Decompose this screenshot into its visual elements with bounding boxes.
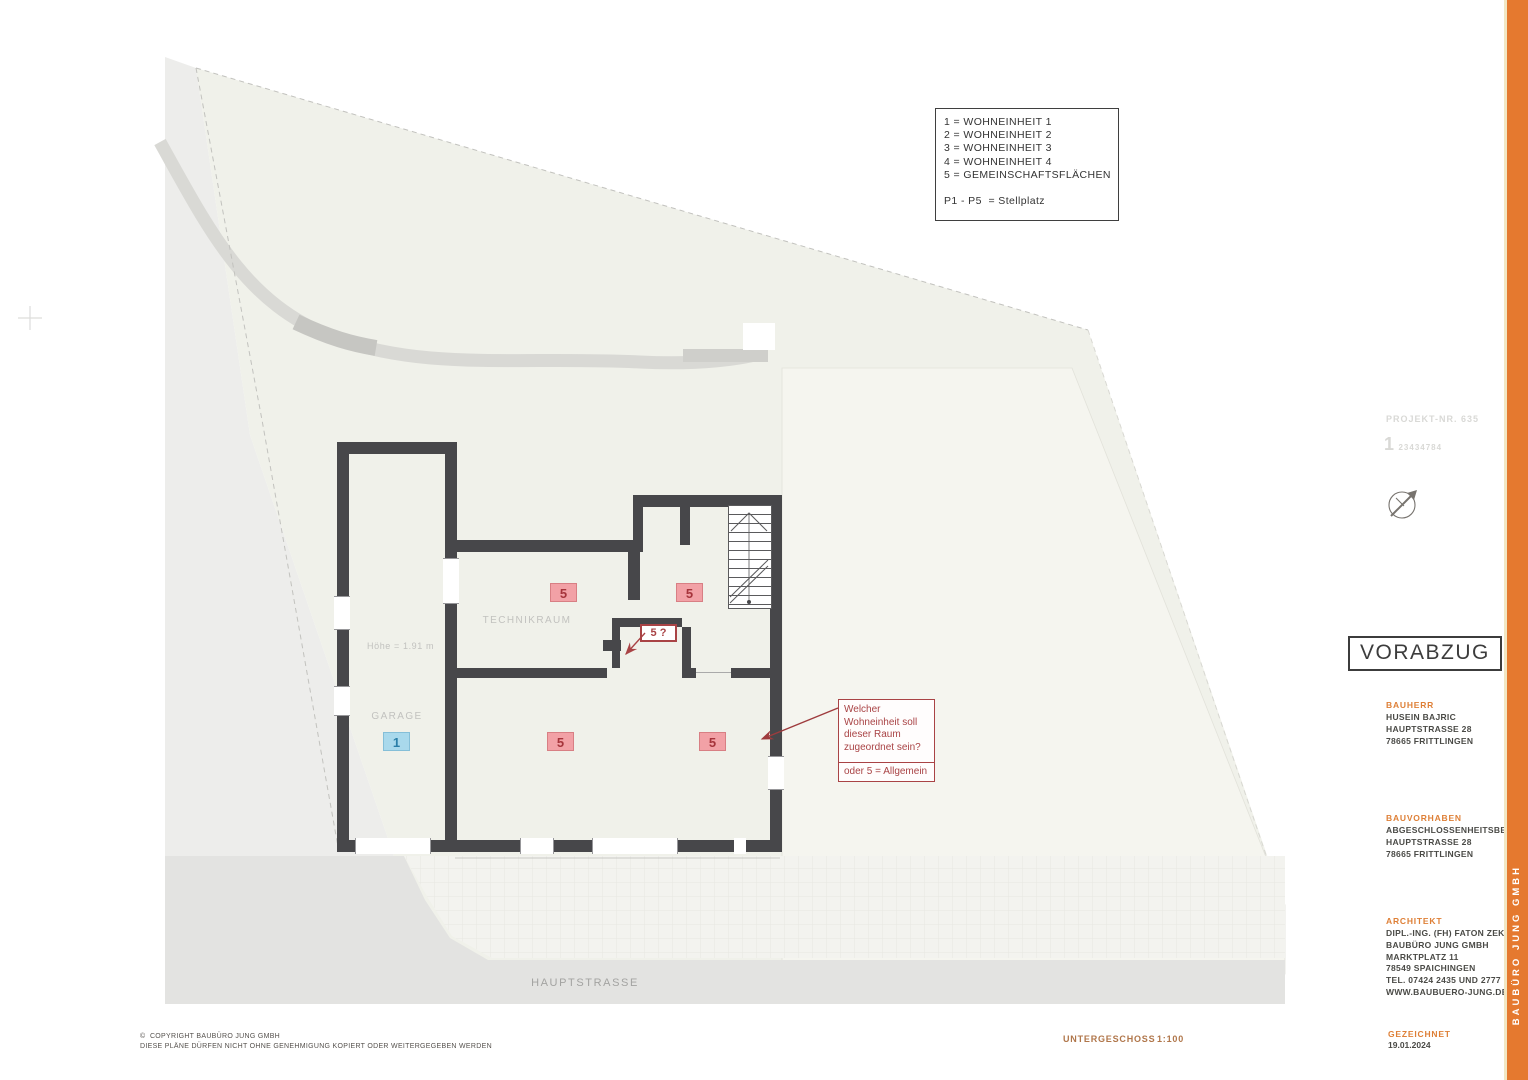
boundary-line (196, 68, 420, 972)
copyright-note: © COPYRIGHT BAUBÜRO JUNG GMBH DIESE PLÄN… (140, 1032, 492, 1051)
architekt-label: ARCHITEKT (1386, 916, 1442, 926)
north-arrow-icon (1389, 490, 1417, 518)
window-opening (334, 596, 350, 630)
bauherr-lines: HUSEIN BAJRIC HAUPTSTRASSE 28 78665 FRIT… (1386, 712, 1473, 747)
architekt-street: MARKTPLATZ 11 (1386, 952, 1511, 964)
boundary-line (1088, 330, 1283, 905)
wall-technik-top (451, 540, 641, 552)
wall-garage-right (445, 442, 457, 852)
wall-divider-1 (451, 668, 607, 678)
unit-label: 5 (550, 583, 577, 602)
legend-line: 5 = GEMEINSCHAFTSFLÄCHEN (944, 169, 1110, 182)
bauherr-street: HAUPTSTRASSE 28 (1386, 724, 1473, 736)
garage-door-opening (355, 838, 431, 854)
bauherr-label: BAUHERR (1386, 700, 1434, 710)
annotation-note: Welcher Wohneinheit soll dieser Raum zug… (838, 699, 935, 782)
legend-line: 2 = WOHNEINHEIT 2 (944, 129, 1110, 142)
paving-grid (404, 856, 1285, 958)
wall-smallroom-stub (603, 640, 621, 651)
door-opening (443, 558, 459, 604)
unit-label-garage: 1 (383, 732, 410, 751)
brand-bar: BAUBÜRO JUNG GMBH (1504, 0, 1528, 1080)
brand-bar-text: BAUBÜRO JUNG GMBH (1511, 865, 1522, 1025)
terrain-white-patch (743, 323, 775, 350)
question-tag: 5 ? (640, 624, 677, 642)
wall-garage-top (337, 442, 457, 454)
project-code: 1 23434784 (1384, 434, 1442, 455)
annotation-alternative: oder 5 = Allgemein (839, 762, 934, 781)
window-opening (334, 686, 350, 716)
project-number: PROJEKT-NR. 635 (1386, 414, 1479, 424)
terrain-band (160, 142, 762, 363)
unit-label: 5 (699, 732, 726, 751)
wall-divider-2 (682, 668, 696, 678)
unit-label: 5 (676, 583, 703, 602)
staircase (728, 505, 772, 609)
wall-garage-left (337, 442, 349, 852)
window-opening (520, 838, 554, 854)
legend-line: 4 = WOHNEINHEIT 4 (944, 156, 1110, 169)
door-opening-line (696, 672, 731, 673)
architekt-firm: BAUBÜRO JUNG GMBH (1386, 940, 1511, 952)
annotation-question: Welcher Wohneinheit soll dieser Raum zug… (839, 700, 934, 762)
bauherr-name: HUSEIN BAJRIC (1386, 712, 1473, 724)
window-opening (592, 838, 678, 854)
architekt-lines: DIPL.-ING. (FH) FATON ZEKA BAUBÜRO JUNG … (1386, 928, 1511, 999)
room-label-technikraum: TECHNIKRAUM (472, 615, 582, 626)
gezeichnet-date: 19.01.2024 (1388, 1040, 1431, 1050)
street-area (165, 856, 1285, 1004)
terrain-band-dark (296, 322, 376, 348)
survey-cross (18, 306, 42, 330)
legend-line: 1 = WOHNEINHEIT 1 (944, 116, 1110, 129)
floorplan-sheet: TECHNIKRAUM GARAGE Höhe = 1.91 m 5 5 5 5… (0, 0, 1528, 1080)
wall-connector (633, 495, 643, 552)
project-code-digits: 23434784 (1398, 443, 1442, 452)
wall-stub-mid (680, 507, 690, 545)
architekt-web: WWW.BAUBUERO-JUNG.DE (1386, 987, 1511, 999)
room-label-garage: GARAGE (352, 711, 442, 722)
window-opening (734, 838, 746, 854)
bauherr-city: 78665 FRITTLINGEN (1386, 736, 1473, 748)
sheet-scale: 1:100 (1157, 1034, 1184, 1044)
window-opening (768, 756, 784, 790)
unit-label: 5 (547, 732, 574, 751)
site-terrace-panel (782, 368, 1285, 974)
paving-area (404, 856, 1285, 958)
architekt-city: 78549 SPAICHINGEN (1386, 963, 1511, 975)
legend-stellplatz: P1 - P5 = Stellplatz (944, 195, 1110, 208)
street-label: HAUPTSTRASSE (500, 977, 670, 989)
vorabzug-stamp: VORABZUG (1348, 636, 1502, 671)
wall-interior-vert (628, 552, 640, 600)
legend-box: 1 = WOHNEINHEIT 1 2 = WOHNEINHEIT 2 3 = … (935, 108, 1119, 221)
architekt-phone: TEL. 07424 2435 UND 2777 (1386, 975, 1511, 987)
wall-divider-3 (731, 668, 770, 678)
wall-smallroom-right (682, 627, 691, 668)
sheet-name: UNTERGESCHOSS (1063, 1034, 1155, 1044)
legend-line: 3 = WOHNEINHEIT 3 (944, 142, 1110, 155)
project-code-prefix: 1 (1384, 434, 1394, 454)
terrain-segment (683, 349, 768, 362)
bauvorhaben-label: BAUVORHABEN (1386, 813, 1462, 823)
architekt-name: DIPL.-ING. (FH) FATON ZEKA (1386, 928, 1511, 940)
height-note: Höhe = 1.91 m (367, 641, 434, 651)
gezeichnet-label: GEZEICHNET (1388, 1029, 1451, 1039)
